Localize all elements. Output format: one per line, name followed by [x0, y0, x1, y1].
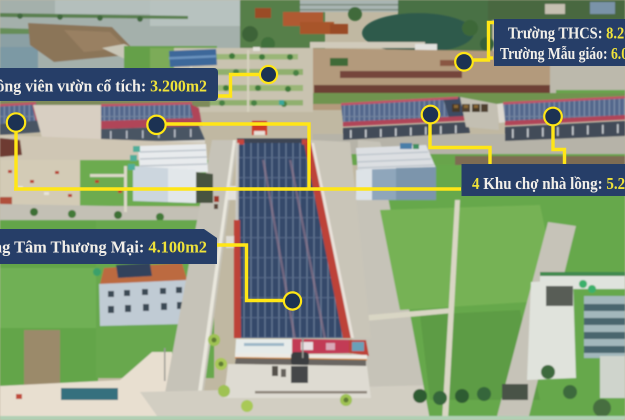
svg-text:Trung Tâm Thương Mại: 4.100m2: Trung Tâm Thương Mại: 4.100m2 [0, 238, 207, 257]
svg-text:Trường THCS: 8.200m2: Trường THCS: 8.200m2 [508, 24, 625, 43]
svg-text:4 Khu chợ nhà lồng: 5.200m2: 4 Khu chợ nhà lồng: 5.200m2 [472, 174, 625, 193]
svg-text:Trường Mẫu giáo: 6.000m2: Trường Mẫu giáo: 6.000m2 [500, 44, 625, 63]
svg-text:Công viên vườn cổ tích: 3.200m: Công viên vườn cổ tích: 3.200m2 [0, 77, 207, 96]
